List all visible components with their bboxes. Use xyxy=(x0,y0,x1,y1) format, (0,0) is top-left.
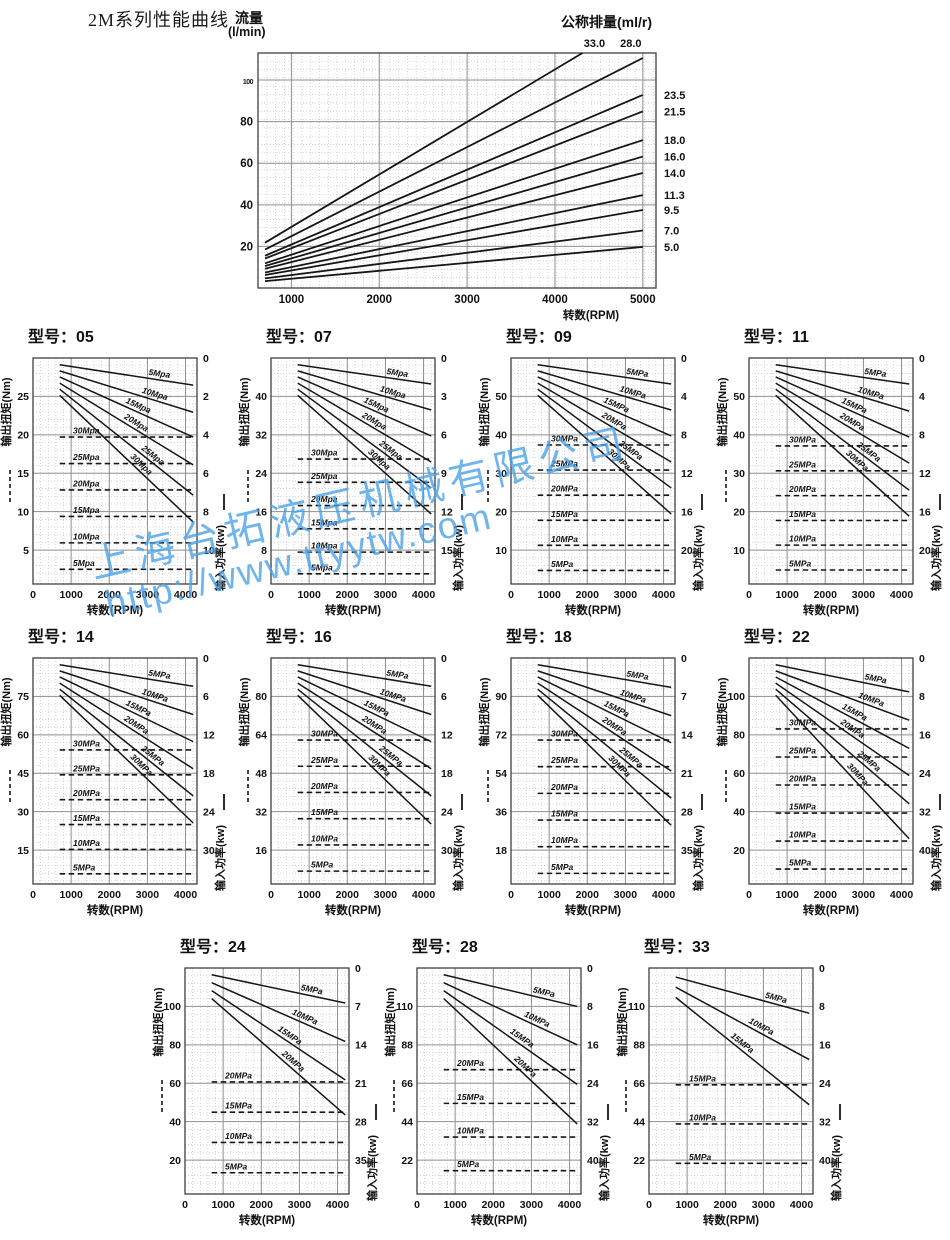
right-tick-label: 14 xyxy=(355,1040,367,1052)
pressure-label: 20Mpa xyxy=(310,494,338,504)
left-tick-label: 80 xyxy=(169,1040,181,1052)
right-tick-label: 6 xyxy=(441,430,447,442)
pressure-label: 10MPa xyxy=(73,838,100,848)
right-tick-label: 7 xyxy=(681,691,687,703)
chart-title: 型号：28 xyxy=(412,933,478,957)
power-line xyxy=(676,997,809,1104)
pressure-label: 30MPa xyxy=(551,434,578,444)
x-tick-label: 4000 xyxy=(890,589,914,601)
x-tick-label: 1000 xyxy=(775,589,799,601)
pressure-label: 15MPa xyxy=(73,813,100,823)
left-axis-label: 输出扭矩(Nm) xyxy=(0,377,13,446)
right-axis-label: 输入功率(kw) xyxy=(451,825,465,891)
left-tick-label: 36 xyxy=(495,806,507,818)
left-tick-label: 32 xyxy=(255,430,267,442)
right-tick-label: 16 xyxy=(587,1040,599,1052)
right-tick-label: 8 xyxy=(919,691,925,703)
left-tick-label: 5 xyxy=(23,545,29,557)
x-tick-label: 4000 xyxy=(558,1199,582,1211)
right-tick-label: 0 xyxy=(203,353,209,365)
y-tick-label: 60 xyxy=(240,158,253,170)
left-tick-label: 8 xyxy=(261,545,267,557)
pressure-label: 15MPa xyxy=(789,509,816,519)
pressure-label: 5MPa xyxy=(551,559,573,569)
pressure-label: 30Mpa xyxy=(73,426,100,436)
left-axis-label: 输出扭矩(Nm) xyxy=(715,677,729,746)
left-tick-label: 20 xyxy=(733,506,745,518)
model-33-plot: 15MPa10MPa5MPa5MPa10MPa15MPa081624324011… xyxy=(616,932,851,1228)
pressure-label: 20MPa xyxy=(72,788,100,798)
left-tick-label: 22 xyxy=(401,1155,413,1167)
pressure-label: 15MPa xyxy=(311,807,338,817)
left-tick-label: 22 xyxy=(633,1155,645,1167)
pressure-label: 5MPa xyxy=(551,862,573,872)
x-axis-label: 转数(RPM) xyxy=(325,603,381,617)
y-tick-label: 80 xyxy=(240,117,253,129)
left-tick-label: 88 xyxy=(401,1040,413,1052)
power-line xyxy=(60,671,193,715)
right-tick-label: 35 xyxy=(681,845,693,857)
left-tick-label: 60 xyxy=(17,730,29,742)
pressure-label: 5MPa xyxy=(225,1161,247,1171)
model-24-chart: 型号：2420MPa15MPa10MPa5MPa5MPa10MPa15MPa20… xyxy=(152,932,387,1228)
model-28-plot: 20MPa15MPa10MPa5MPa5MPa10MPa15MPa20MPa08… xyxy=(384,932,619,1228)
power-line xyxy=(776,383,909,463)
x-tick-label: 2000 xyxy=(98,889,122,901)
chart-title: 型号：16 xyxy=(266,623,332,647)
chart-title: 型号：09 xyxy=(506,323,572,347)
pressure-label: 5MPa xyxy=(789,558,811,568)
x-tick-label: 3000 xyxy=(374,889,398,901)
pressure-label: 20MPa xyxy=(550,782,578,792)
model-07-chart: 型号：0730Mpa25Mpa20Mpa15Mpa10Mpa5Mpa5Mpa10… xyxy=(238,322,473,618)
right-axis-label: 输入功率(kw) xyxy=(213,825,227,891)
displacement-label: 16.0 xyxy=(664,152,685,164)
x-tick-label: 1000 xyxy=(675,1199,699,1211)
left-tick-label: 60 xyxy=(169,1078,181,1090)
x-tick-label: 4000 xyxy=(174,889,198,901)
x-tick-label: 2000 xyxy=(366,294,392,306)
left-axis-label: 输出扭矩(Nm) xyxy=(237,677,251,746)
x-tick-label: 1000 xyxy=(297,589,321,601)
left-tick-label: 40 xyxy=(733,430,745,442)
displacement-line xyxy=(265,95,643,256)
pressure-label: 20MPa xyxy=(310,781,338,791)
left-tick-label: 10 xyxy=(495,545,507,557)
chart-title: 型号：22 xyxy=(744,623,810,647)
x-tick-label: 1000 xyxy=(59,889,83,901)
pressure-label: 5MPa xyxy=(311,860,333,870)
pressure-label: 10MPa xyxy=(225,1131,252,1141)
left-tick-label: 15 xyxy=(17,845,29,857)
right-axis-label: 输入功率(kw) xyxy=(691,825,705,891)
x-axis-label: 转数(RPM) xyxy=(565,903,621,917)
left-tick-label: 40 xyxy=(169,1116,181,1128)
pressure-label: 25MPa xyxy=(72,763,100,773)
left-tick-label: 110 xyxy=(396,1001,413,1013)
power-line xyxy=(298,665,431,686)
right-tick-label: 20 xyxy=(919,545,931,557)
right-tick-label: 6 xyxy=(203,468,209,480)
displacement-label: 5.0 xyxy=(664,242,679,254)
x-axis-label: 转数(RPM) xyxy=(563,308,619,322)
chart-title: 型号：24 xyxy=(180,933,246,957)
x-tick-label: 2000 xyxy=(714,1199,738,1211)
left-tick-label: 64 xyxy=(255,730,267,742)
x-tick-label: 4000 xyxy=(652,589,676,601)
right-tick-label: 8 xyxy=(681,430,687,442)
pressure-label: 30MPa xyxy=(73,738,100,748)
x-tick-label: 5000 xyxy=(630,294,656,306)
pressure-label: 25MPa xyxy=(550,755,578,765)
flow-axis-unit: (l/min) xyxy=(228,25,266,39)
model-05-plot: 30Mpa25Mpa20Mpa15Mpa10Mpa5Mpa5Mpa10Mpa15… xyxy=(0,322,235,618)
right-tick-label: 0 xyxy=(919,653,925,665)
left-tick-label: 30 xyxy=(17,806,29,818)
chart-title: 型号：33 xyxy=(644,933,710,957)
pressure-label: 15Mpa xyxy=(73,505,100,515)
displacement-axis-title: 公称排量(ml/r) xyxy=(561,12,652,32)
model-18-plot: 30MPa25MPa20MPa15MPa10MPa5MPa5MPa10MPa15… xyxy=(478,622,713,918)
right-tick-label: 0 xyxy=(587,963,593,975)
model-16-chart: 型号：1630MPa25MPa20MPa15MPa10MPa5MPa5MPa10… xyxy=(238,622,473,918)
right-tick-label: 0 xyxy=(441,653,447,665)
right-tick-label: 18 xyxy=(203,768,215,780)
left-tick-label: 16 xyxy=(255,845,267,857)
model-07-plot: 30Mpa25Mpa20Mpa15Mpa10Mpa5Mpa5Mpa10Mpa15… xyxy=(238,322,473,618)
power-line xyxy=(60,365,193,385)
flow-displacement-chart: 流量 (l/min) 公称排量(ml/r) 33.028.023.521.518… xyxy=(225,6,712,320)
displacement-line xyxy=(265,53,582,243)
pressure-label: 10MPa xyxy=(457,1126,484,1136)
displacement-label: 23.5 xyxy=(664,90,685,102)
right-tick-label: 3 xyxy=(441,391,447,403)
power-line xyxy=(444,975,577,1007)
left-tick-label: 40 xyxy=(495,430,507,442)
x-tick-label: 4000 xyxy=(542,294,568,306)
model-05-chart: 型号：0530Mpa25Mpa20Mpa15Mpa10Mpa5Mpa5Mpa10… xyxy=(0,322,235,618)
x-tick-label: 3000 xyxy=(136,889,160,901)
x-tick-label: 4000 xyxy=(790,1199,814,1211)
displacement-label: 14.0 xyxy=(664,168,685,180)
right-tick-label: 10 xyxy=(203,545,215,557)
left-axis-label: 输出扭矩(Nm) xyxy=(477,377,491,446)
pressure-label: 20MPa xyxy=(224,1070,252,1080)
pressure-label: 10MPa xyxy=(551,835,578,845)
pressure-label: 5MPa xyxy=(864,366,888,379)
x-tick-label: 0 xyxy=(268,589,274,601)
right-tick-label: 12 xyxy=(681,468,693,480)
y-tick-label: 100 xyxy=(243,79,254,86)
x-tick-label: 2000 xyxy=(250,1199,274,1211)
power-line xyxy=(212,999,345,1115)
left-tick-label: 80 xyxy=(255,691,267,703)
x-tick-label: 1000 xyxy=(443,1199,467,1211)
power-line xyxy=(676,977,809,1013)
displacement-label: 7.0 xyxy=(664,225,679,237)
right-axis-label: 输入功率(kw) xyxy=(691,525,705,591)
x-axis-label: 转数(RPM) xyxy=(87,603,143,617)
chart-title: 型号：14 xyxy=(28,623,94,647)
displacement-label: 11.3 xyxy=(664,190,685,202)
right-tick-label: 32 xyxy=(819,1116,831,1128)
right-tick-label: 16 xyxy=(919,506,931,518)
pressure-label: 25MPa xyxy=(788,459,816,469)
left-tick-label: 40 xyxy=(733,806,745,818)
x-axis-label: 转数(RPM) xyxy=(803,903,859,917)
right-tick-label: 28 xyxy=(681,806,693,818)
pressure-label: 15MPa xyxy=(225,1101,252,1111)
pressure-label: 20Mpa xyxy=(72,478,100,488)
pressure-label: 10MPa xyxy=(551,534,578,544)
x-tick-label: 0 xyxy=(268,889,274,901)
right-tick-label: 2 xyxy=(203,391,209,403)
right-tick-label: 0 xyxy=(203,653,209,665)
flow-chart-plot: 33.028.023.521.518.016.014.011.39.57.05.… xyxy=(225,6,712,320)
power-line xyxy=(776,377,909,437)
x-tick-label: 0 xyxy=(646,1199,652,1211)
power-line xyxy=(538,671,671,716)
x-tick-label: 4000 xyxy=(412,589,436,601)
x-tick-label: 0 xyxy=(414,1199,420,1211)
pressure-label: 10Mpa xyxy=(73,531,100,541)
chart-title: 型号：11 xyxy=(744,323,809,347)
x-tick-label: 2000 xyxy=(576,889,600,901)
model-28-chart: 型号：2820MPa15MPa10MPa5MPa5MPa10MPa15MPa20… xyxy=(384,932,619,1228)
left-axis-label: 输出扭矩(Nm) xyxy=(383,987,397,1056)
pressure-label: 15Mpa xyxy=(311,517,338,527)
pressure-label: 25Mpa xyxy=(310,471,338,481)
left-tick-label: 25 xyxy=(17,391,29,403)
left-tick-label: 80 xyxy=(733,730,745,742)
pressure-label: 15MPa xyxy=(551,509,578,519)
power-line xyxy=(538,665,671,688)
pressure-label: 30MPa xyxy=(789,434,816,444)
power-line xyxy=(212,991,345,1080)
right-tick-label: 24 xyxy=(919,768,931,780)
pressure-label: 15MPa xyxy=(689,1073,716,1083)
x-tick-label: 3000 xyxy=(852,889,876,901)
pressure-label: 20MPa xyxy=(456,1058,484,1068)
left-tick-label: 66 xyxy=(633,1078,645,1090)
x-axis-label: 转数(RPM) xyxy=(87,903,143,917)
left-tick-label: 10 xyxy=(733,545,745,557)
x-tick-label: 0 xyxy=(508,889,514,901)
x-tick-label: 2000 xyxy=(482,1199,506,1211)
displacement-label: 28.0 xyxy=(620,38,641,50)
x-tick-label: 3000 xyxy=(374,589,398,601)
displacement-label: 33.0 xyxy=(584,38,605,50)
displacement-label: 9.5 xyxy=(664,205,679,217)
x-tick-label: 1000 xyxy=(59,589,83,601)
right-tick-label: 21 xyxy=(355,1078,367,1090)
left-tick-label: 40 xyxy=(255,391,267,403)
x-tick-label: 1000 xyxy=(211,1199,235,1211)
chart-title: 型号：18 xyxy=(506,623,572,647)
x-tick-label: 1000 xyxy=(297,889,321,901)
right-tick-label: 16 xyxy=(681,506,693,518)
right-tick-label: 12 xyxy=(441,730,453,742)
pressure-label: 5MPa xyxy=(457,1159,479,1169)
x-tick-label: 4000 xyxy=(174,589,198,601)
x-tick-label: 1000 xyxy=(279,294,305,306)
chart-title: 型号：07 xyxy=(266,323,332,347)
left-tick-label: 30 xyxy=(733,468,745,480)
right-tick-label: 8 xyxy=(819,1001,825,1013)
right-tick-label: 0 xyxy=(681,653,687,665)
right-axis-label: 输入功率(kw) xyxy=(597,1135,611,1201)
x-axis-label: 转数(RPM) xyxy=(239,1213,295,1227)
model-24-plot: 20MPa15MPa10MPa5MPa5MPa10MPa15MPa20MPa07… xyxy=(152,932,387,1228)
x-tick-label: 1000 xyxy=(537,589,561,601)
right-tick-label: 4 xyxy=(919,391,925,403)
pressure-label: 5Mpa xyxy=(386,366,409,379)
pressure-label: 25Mpa xyxy=(72,452,100,462)
x-axis-label: 转数(RPM) xyxy=(325,903,381,917)
left-axis-label: 输出扭矩(Nm) xyxy=(615,987,629,1056)
model-18-chart: 型号：1830MPa25MPa20MPa15MPa10MPa5MPa5MPa10… xyxy=(478,622,713,918)
left-tick-label: 20 xyxy=(733,845,745,857)
right-tick-label: 16 xyxy=(919,730,931,742)
left-tick-label: 48 xyxy=(255,768,267,780)
power-line xyxy=(60,677,193,742)
left-tick-label: 54 xyxy=(495,768,507,780)
x-tick-label: 0 xyxy=(182,1199,188,1211)
displacement-label: 18.0 xyxy=(664,135,685,147)
right-tick-label: 32 xyxy=(587,1116,599,1128)
model-22-plot: 30MPa25MPa20MPa15MPa10MPa5MPa5MPa10MPa15… xyxy=(716,622,950,918)
left-axis-label: 输出扭矩(Nm) xyxy=(237,377,251,446)
model-09-plot: 30MPa25MPa20MPa15MPa10MPa5MPa5MPa10MPa15… xyxy=(478,322,713,618)
pressure-label: 25MPa xyxy=(550,459,578,469)
right-tick-label: 40 xyxy=(587,1155,599,1167)
right-axis-label: 输入功率(kw) xyxy=(829,1135,843,1201)
left-tick-label: 24 xyxy=(255,468,267,480)
right-tick-label: 40 xyxy=(819,1155,831,1167)
x-tick-label: 2000 xyxy=(336,589,360,601)
right-tick-label: 4 xyxy=(203,430,209,442)
left-axis-label: 输出扭矩(Nm) xyxy=(0,677,13,746)
right-tick-label: 0 xyxy=(355,963,361,975)
pressure-label: 10Mpa xyxy=(379,383,407,400)
left-tick-label: 10 xyxy=(17,506,29,518)
left-tick-label: 60 xyxy=(733,768,745,780)
right-tick-label: 0 xyxy=(919,353,925,365)
x-tick-label: 2000 xyxy=(336,889,360,901)
left-tick-label: 20 xyxy=(169,1155,181,1167)
left-tick-label: 75 xyxy=(17,691,29,703)
x-axis-label: 转数(RPM) xyxy=(803,603,859,617)
left-axis-label: 输出扭矩(Nm) xyxy=(477,677,491,746)
left-tick-label: 44 xyxy=(633,1116,645,1128)
left-tick-label: 90 xyxy=(495,691,507,703)
model-14-chart: 型号：1430MPa25MPa20MPa15MPa10MPa5MPa5MPa10… xyxy=(0,622,235,918)
right-tick-label: 0 xyxy=(441,353,447,365)
x-tick-label: 3000 xyxy=(852,589,876,601)
pressure-label: 15MPa xyxy=(551,809,578,819)
x-tick-label: 0 xyxy=(746,889,752,901)
pressure-label: 30MPa xyxy=(789,717,816,727)
right-tick-label: 24 xyxy=(203,806,215,818)
right-tick-label: 6 xyxy=(441,691,447,703)
x-tick-label: 3000 xyxy=(752,1199,776,1211)
right-tick-label: 16 xyxy=(819,1040,831,1052)
left-tick-label: 16 xyxy=(255,506,267,518)
displacement-line xyxy=(265,111,643,258)
power-line xyxy=(60,665,193,686)
right-axis-label: 输入功率(kw) xyxy=(929,825,943,891)
x-tick-label: 3000 xyxy=(520,1199,544,1211)
left-tick-label: 100 xyxy=(163,1001,181,1013)
power-line xyxy=(776,695,909,839)
x-tick-label: 2000 xyxy=(814,889,838,901)
pressure-label: 30Mpa xyxy=(311,448,338,458)
pressure-label: 5MPa xyxy=(626,366,650,379)
right-tick-label: 7 xyxy=(355,1001,361,1013)
right-tick-label: 8 xyxy=(587,1001,593,1013)
right-tick-label: 4 xyxy=(681,391,687,403)
x-tick-label: 2000 xyxy=(576,589,600,601)
right-tick-label: 12 xyxy=(441,506,453,518)
left-tick-label: 44 xyxy=(401,1116,413,1128)
pressure-label: 5MPa xyxy=(73,862,95,872)
right-axis-label: 输入功率(kw) xyxy=(451,525,465,591)
pressure-label: 5MPa xyxy=(764,990,788,1006)
pressure-label: 5Mpa xyxy=(73,558,95,568)
pressure-label: 10MPa xyxy=(789,830,816,840)
x-axis-label: 转数(RPM) xyxy=(471,1213,527,1227)
y-tick-label: 40 xyxy=(240,200,253,212)
right-tick-label: 12 xyxy=(203,730,215,742)
pressure-label: 10Mpa xyxy=(311,541,338,551)
left-tick-label: 30 xyxy=(495,468,507,480)
x-tick-label: 3000 xyxy=(454,294,480,306)
left-tick-label: 18 xyxy=(495,845,507,857)
x-tick-label: 0 xyxy=(30,889,36,901)
right-tick-label: 6 xyxy=(203,691,209,703)
pressure-label: 20MPa xyxy=(788,774,816,784)
displacement-label: 21.5 xyxy=(664,106,685,118)
left-tick-label: 100 xyxy=(727,691,745,703)
right-tick-label: 0 xyxy=(819,963,825,975)
right-tick-label: 20 xyxy=(681,545,693,557)
power-line xyxy=(298,671,431,715)
pressure-label: 10MPa xyxy=(689,1112,716,1122)
right-tick-label: 40 xyxy=(919,845,931,857)
right-tick-label: 21 xyxy=(681,768,693,780)
pressure-label: 20MPa xyxy=(788,484,816,494)
displacement-line xyxy=(265,140,643,263)
model-22-chart: 型号：2230MPa25MPa20MPa15MPa10MPa5MPa5MPa10… xyxy=(716,622,950,918)
page: 2M系列性能曲线 流量 (l/min) 公称排量(ml/r) 33.028.02… xyxy=(0,0,950,1240)
left-tick-label: 110 xyxy=(628,1001,645,1013)
right-tick-label: 0 xyxy=(681,353,687,365)
x-tick-label: 3000 xyxy=(614,889,638,901)
right-tick-label: 12 xyxy=(919,468,931,480)
right-tick-label: 30 xyxy=(203,845,215,857)
x-axis-label: 转数(RPM) xyxy=(703,1213,759,1227)
x-tick-label: 3000 xyxy=(614,589,638,601)
page-title: 2M系列性能曲线 xyxy=(88,6,229,32)
model-33-chart: 型号：3315MPa10MPa5MPa5MPa10MPa15MPa0816243… xyxy=(616,932,851,1228)
x-tick-label: 1000 xyxy=(537,889,561,901)
y-tick-label: 20 xyxy=(240,241,253,253)
x-tick-label: 3000 xyxy=(288,1199,312,1211)
x-axis-label: 转数(RPM) xyxy=(565,603,621,617)
right-tick-label: 24 xyxy=(587,1078,599,1090)
x-tick-label: 1000 xyxy=(775,889,799,901)
x-tick-label: 0 xyxy=(508,589,514,601)
